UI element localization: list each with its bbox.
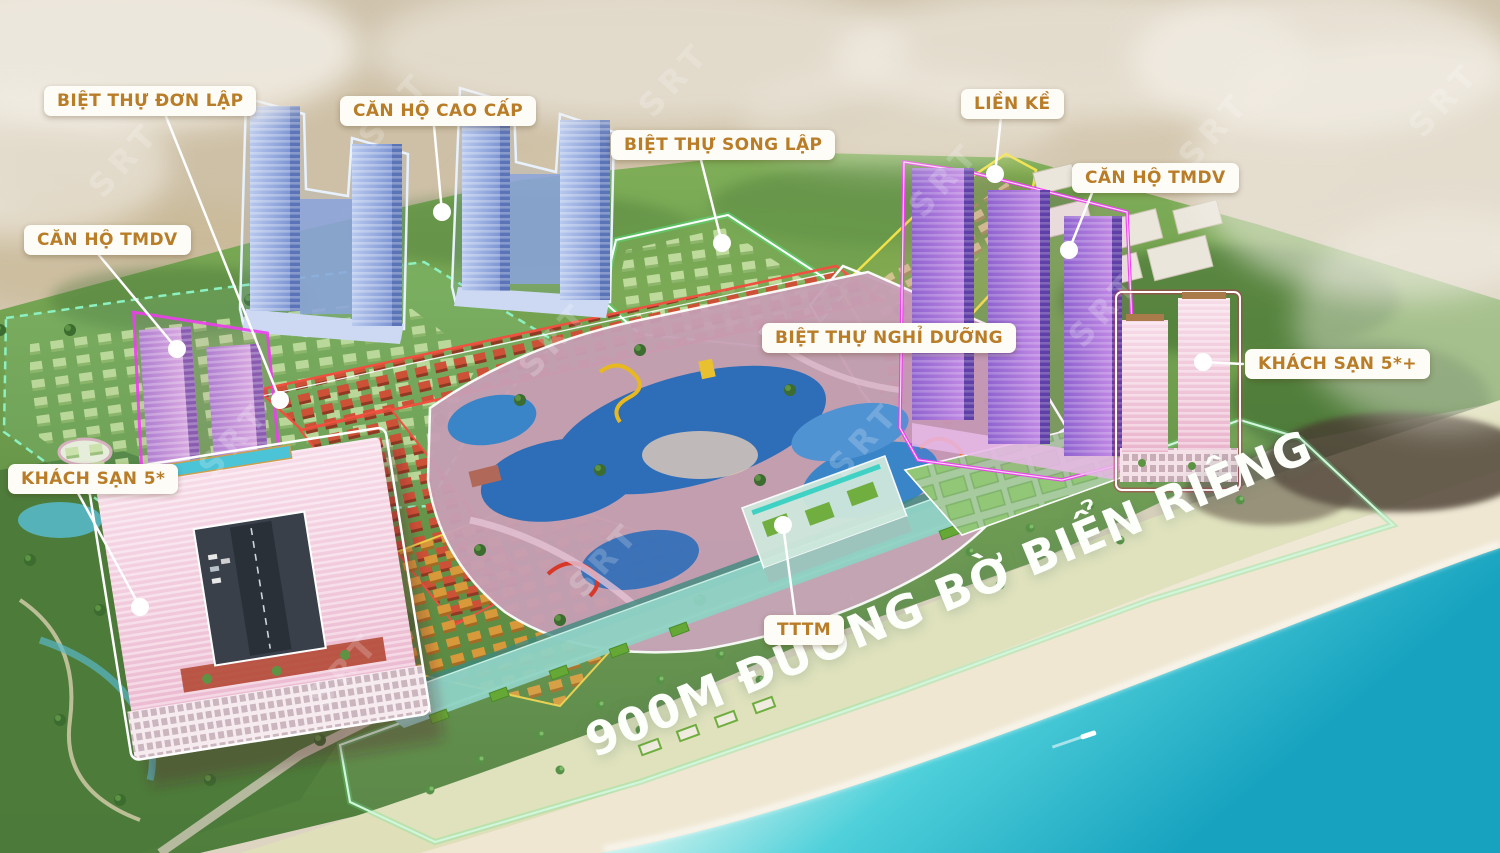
label-biet-thu-don-lap: BIỆT THỰ ĐƠN LẬP bbox=[44, 86, 256, 116]
label-biet-thu-nghi-duong: BIỆT THỰ NGHỈ DƯỠNG bbox=[762, 323, 1016, 353]
label-lien-ke: LIỀN KỀ bbox=[961, 89, 1064, 119]
label-can-ho-tmdv-right: CĂN HỘ TMDV bbox=[1072, 163, 1239, 193]
label-khach-san-5-plus: KHÁCH SẠN 5*+ bbox=[1245, 349, 1430, 379]
label-biet-thu-song-lap: BIỆT THỰ SONG LẬP bbox=[611, 130, 835, 160]
purple-towers-right bbox=[900, 162, 1138, 480]
label-can-ho-tmdv-left: CĂN HỘ TMDV bbox=[24, 225, 191, 255]
masterplan-render bbox=[0, 0, 1500, 853]
label-tttm: TTTM bbox=[764, 615, 844, 645]
masterplan-scene: SRT SRT SRT SRT SRT SRT SRT SRT SRT SRT … bbox=[0, 0, 1500, 853]
label-khach-san-5: KHÁCH SẠN 5* bbox=[8, 464, 178, 494]
label-can-ho-cao-cap: CĂN HỘ CAO CẤP bbox=[340, 96, 536, 126]
